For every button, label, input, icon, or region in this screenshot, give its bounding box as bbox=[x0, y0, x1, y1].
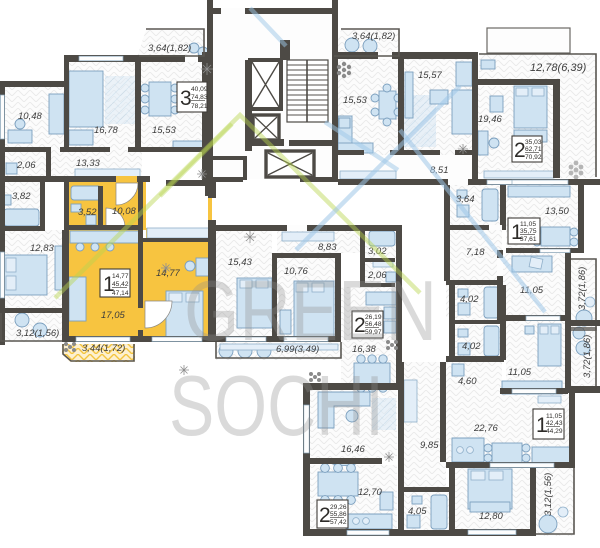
svg-text:2: 2 bbox=[514, 139, 526, 162]
svg-text:4,02: 4,02 bbox=[460, 294, 479, 305]
svg-text:3,44(1,72): 3,44(1,72) bbox=[82, 343, 125, 354]
svg-text:SOCHI: SOCHI bbox=[169, 359, 384, 454]
svg-text:3,64(1,82): 3,64(1,82) bbox=[148, 43, 191, 54]
svg-text:15,53: 15,53 bbox=[343, 95, 367, 106]
svg-text:10,08: 10,08 bbox=[112, 206, 136, 217]
svg-text:3,64(1,82): 3,64(1,82) bbox=[352, 31, 395, 42]
svg-text:2,06: 2,06 bbox=[16, 160, 36, 171]
svg-text:4,60: 4,60 bbox=[458, 376, 477, 387]
svg-text:3,72(1,86): 3,72(1,86) bbox=[582, 335, 593, 378]
svg-text:15,53: 15,53 bbox=[152, 125, 176, 136]
svg-text:3,72(1,86): 3,72(1,86) bbox=[577, 267, 588, 310]
svg-text:14,77: 14,77 bbox=[156, 268, 180, 279]
svg-text:35,75: 35,75 bbox=[520, 228, 537, 235]
svg-text:74,83: 74,83 bbox=[191, 94, 208, 101]
svg-text:62,71: 62,71 bbox=[525, 146, 542, 153]
svg-text:35,03: 35,03 bbox=[525, 139, 542, 146]
svg-text:12,70: 12,70 bbox=[358, 487, 382, 498]
svg-text:70,92: 70,92 bbox=[525, 154, 542, 161]
svg-text:3,12(1,56): 3,12(1,56) bbox=[543, 473, 554, 516]
svg-text:22,76: 22,76 bbox=[473, 423, 498, 434]
svg-text:12,78(6,39): 12,78(6,39) bbox=[530, 62, 587, 74]
svg-text:10,48: 10,48 bbox=[18, 111, 42, 122]
svg-text:GREEN: GREEN bbox=[184, 264, 437, 359]
svg-text:37,61: 37,61 bbox=[520, 236, 537, 243]
svg-text:11,05: 11,05 bbox=[520, 221, 536, 228]
svg-text:57,42: 57,42 bbox=[330, 519, 347, 526]
svg-text:15,57: 15,57 bbox=[418, 70, 442, 81]
svg-text:2: 2 bbox=[319, 504, 331, 527]
svg-text:19,46: 19,46 bbox=[478, 114, 502, 125]
svg-text:16,78: 16,78 bbox=[94, 125, 118, 136]
svg-text:17,05: 17,05 bbox=[101, 310, 125, 321]
svg-text:78,21: 78,21 bbox=[191, 103, 208, 110]
svg-text:3,52: 3,52 bbox=[78, 207, 97, 218]
svg-text:8,83: 8,83 bbox=[318, 242, 337, 253]
svg-text:4,05: 4,05 bbox=[408, 506, 427, 517]
svg-text:55,86: 55,86 bbox=[330, 511, 347, 518]
svg-text:12,83: 12,83 bbox=[30, 243, 54, 254]
svg-text:12,80: 12,80 bbox=[479, 511, 503, 522]
svg-text:9,85: 9,85 bbox=[420, 440, 439, 451]
svg-text:11,05: 11,05 bbox=[546, 413, 562, 420]
svg-text:13,50: 13,50 bbox=[545, 206, 569, 217]
svg-text:3: 3 bbox=[180, 87, 192, 110]
svg-text:45,42: 45,42 bbox=[112, 281, 129, 288]
svg-text:11,05: 11,05 bbox=[508, 367, 532, 378]
svg-text:47,14: 47,14 bbox=[112, 290, 129, 297]
svg-text:29,26: 29,26 bbox=[330, 504, 347, 511]
svg-text:40,09: 40,09 bbox=[191, 86, 208, 93]
svg-text:3,82: 3,82 bbox=[12, 191, 31, 202]
svg-text:4,02: 4,02 bbox=[462, 341, 481, 352]
svg-text:3,12(1,56): 3,12(1,56) bbox=[16, 328, 59, 339]
svg-text:13,33: 13,33 bbox=[76, 158, 100, 169]
svg-text:42,43: 42,43 bbox=[546, 420, 563, 427]
svg-text:7,18: 7,18 bbox=[466, 247, 485, 258]
svg-text:14,77: 14,77 bbox=[112, 273, 129, 280]
svg-text:44,29: 44,29 bbox=[546, 428, 563, 435]
